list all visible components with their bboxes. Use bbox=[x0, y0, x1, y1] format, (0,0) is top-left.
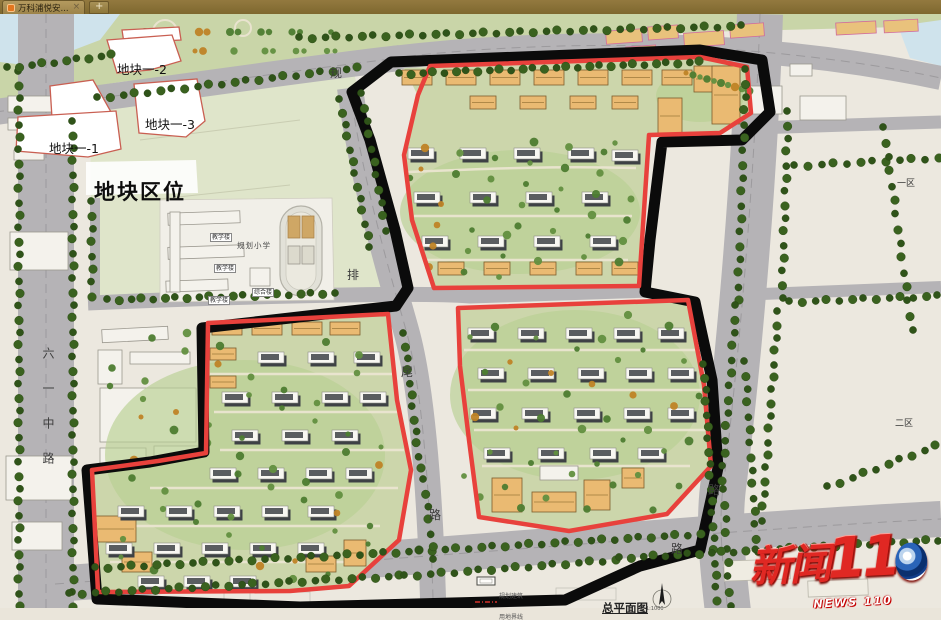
teaching-building-label-3: 教学楼 bbox=[208, 296, 230, 305]
road-label-bottom: 路 bbox=[671, 540, 683, 557]
plot-label-2: 地块一-2 bbox=[117, 59, 167, 78]
teaching-building-label-2: 教学楼 bbox=[214, 264, 236, 273]
school-name-label: 规划小学 bbox=[237, 240, 271, 251]
zone-label-1: 一区 bbox=[897, 176, 915, 189]
road-label-mid-upper: 排 bbox=[347, 266, 359, 283]
site-plan-image: 地块一-2 地块一-3 地块一-1 地块区位 规 排 尾 路 路 路 六一中路 … bbox=[0, 14, 941, 620]
new-tab-button[interactable]: + bbox=[89, 1, 109, 14]
road-label-mid-lower: 路 bbox=[429, 506, 441, 523]
road-label-right: 路 bbox=[708, 481, 720, 498]
tab-close-icon[interactable]: × bbox=[73, 3, 81, 12]
plan-scale: 1:1000 bbox=[646, 606, 664, 612]
road-label-left-vertical: 六一中路 bbox=[40, 347, 57, 517]
tab-title: 万科浦悦安... bbox=[18, 2, 69, 14]
site-plan-drawing bbox=[0, 14, 941, 620]
teaching-building-label-1: 教学楼 bbox=[210, 233, 232, 242]
screenshot-root: 万科浦悦安... × + 地块一-2 地块一-3 地块一-1 地块区位 规 排 … bbox=[0, 0, 941, 620]
zone-label-2: 二区 bbox=[895, 416, 913, 429]
road-label-mid: 尾 bbox=[401, 363, 413, 380]
browser-tab[interactable]: 万科浦悦安... × bbox=[2, 0, 85, 14]
plot-label-1: 地块一-1 bbox=[49, 138, 99, 157]
road-label-top: 规 bbox=[330, 64, 342, 81]
legend-planned-building-label: 规划建筑 bbox=[499, 591, 523, 600]
page-favicon-icon bbox=[7, 4, 15, 12]
area-location-title: 地块区位 bbox=[94, 176, 186, 206]
browser-tab-bar: 万科浦悦安... × + bbox=[0, 0, 941, 15]
legend-site-boundary-label: 用地界线 bbox=[499, 612, 523, 620]
complex-building-label: 综合楼 bbox=[252, 288, 274, 297]
plan-title: 总平面图 bbox=[602, 600, 648, 616]
plot-label-3: 地块一-3 bbox=[145, 114, 195, 133]
